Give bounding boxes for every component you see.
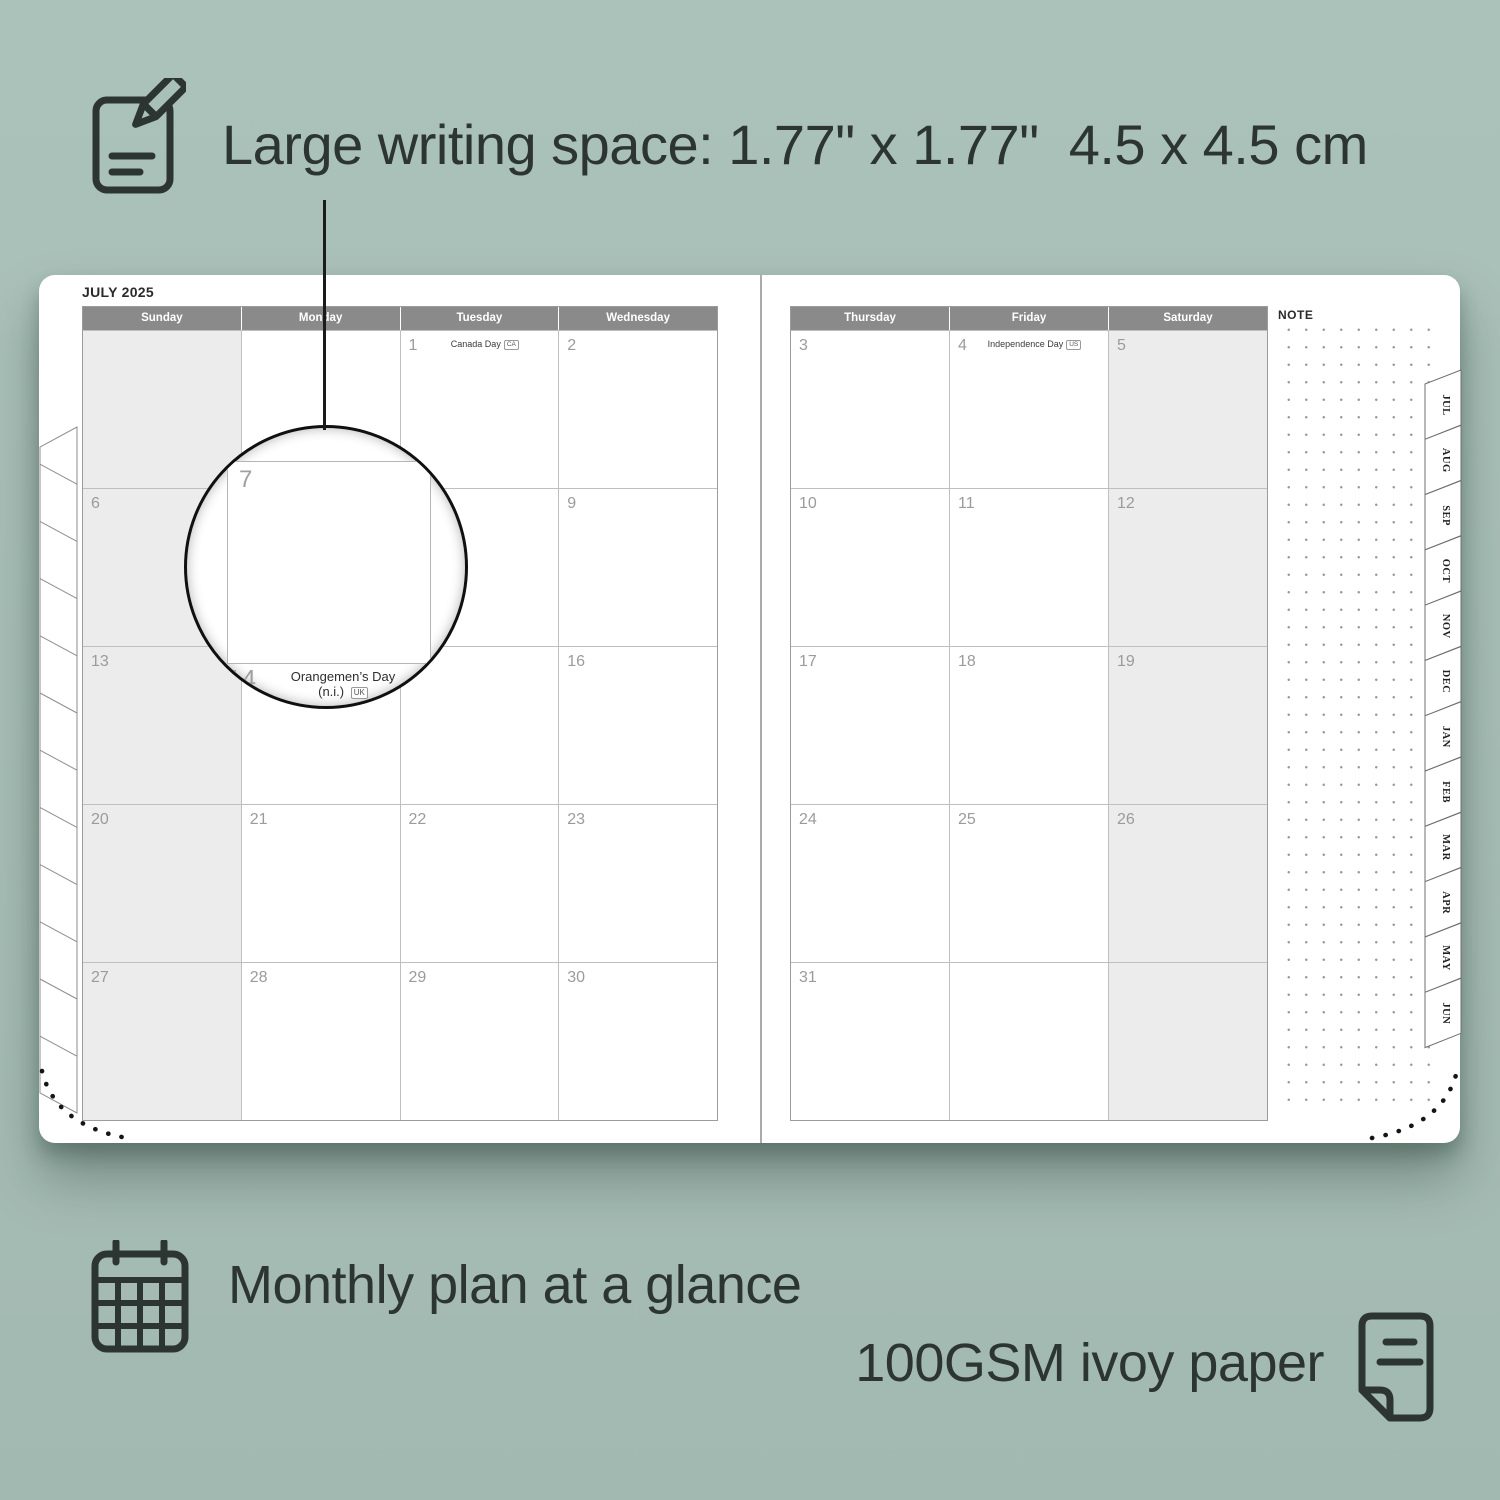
magnified-holiday-name: Orangemen’s Day <box>291 669 396 684</box>
pencil-note-icon <box>90 78 186 196</box>
note-label: NOTE <box>1278 308 1321 322</box>
magnifier-lens: 7 14 Orangemen’s Day (n.i.) UK <box>184 425 468 709</box>
feature-monthly-plan-label: Monthly plan at a glance <box>228 1254 801 1316</box>
feature-paper-label: 100GSM ivoy paper <box>855 1332 1324 1394</box>
stitch-arcs <box>39 275 1460 1143</box>
magnified-day-cell <box>227 461 431 664</box>
magnified-holiday-suffix: (n.i.) <box>318 684 344 699</box>
magnified-day-number: 7 <box>239 466 252 494</box>
calendar-grid-icon <box>88 1240 192 1356</box>
planner-spread: JULY 2025 SundayMondayTuesdayWednesday1C… <box>39 275 1460 1143</box>
feature-writing-space-label: Large writing space: 1.77" x 1.77" 4.5 x… <box>222 112 1368 177</box>
magnified-holiday-region-badge: UK <box>351 687 368 699</box>
stitch-arc-right <box>1372 1071 1457 1138</box>
magnified-holiday: Orangemen’s Day (n.i.) UK <box>237 669 449 699</box>
stitch-arc-left <box>42 1071 127 1138</box>
product-feature-image: Large writing space: 1.77" x 1.77" 4.5 x… <box>0 0 1500 1500</box>
magnifier-callout-line <box>323 200 326 430</box>
paper-sheet-icon <box>1350 1310 1440 1430</box>
